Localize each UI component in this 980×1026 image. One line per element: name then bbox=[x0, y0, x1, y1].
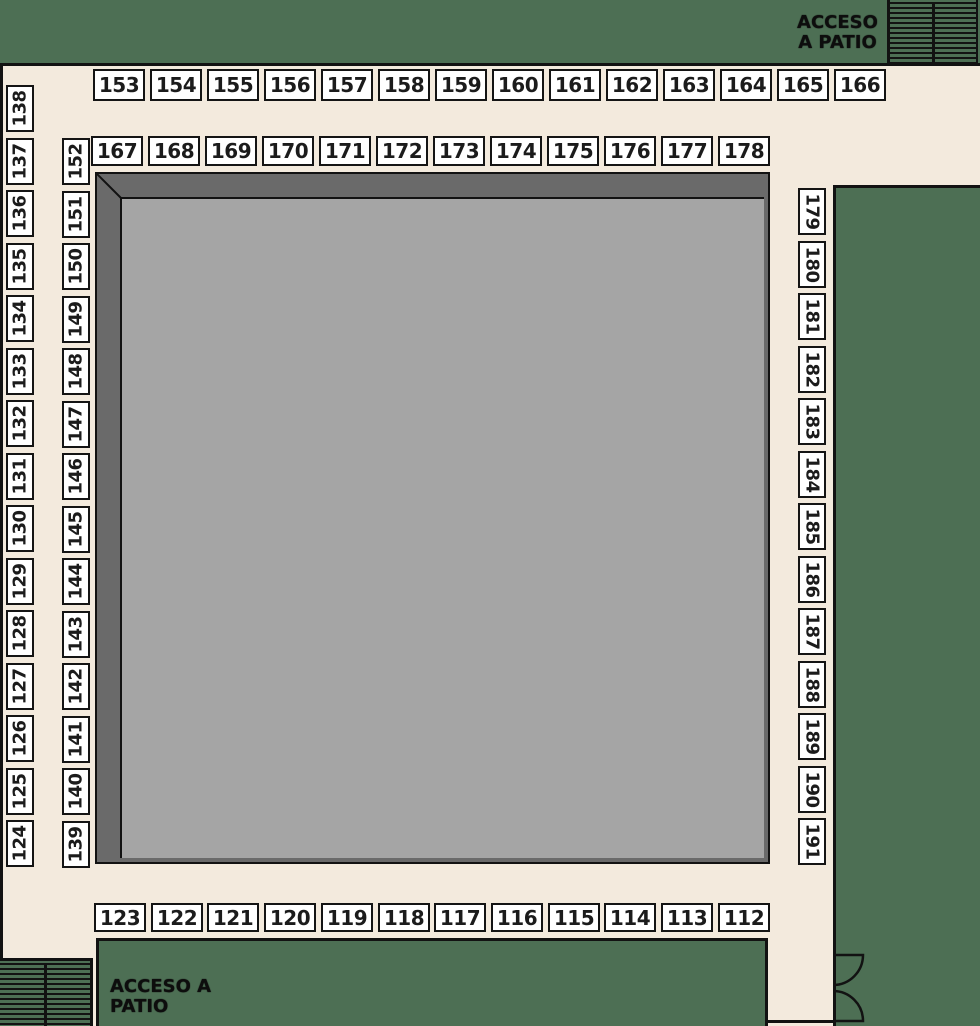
booth-number: 154 bbox=[156, 73, 196, 97]
booth-131[interactable]: 131 bbox=[6, 453, 34, 500]
booth-144[interactable]: 144 bbox=[62, 558, 90, 605]
booth-127[interactable]: 127 bbox=[6, 663, 34, 710]
booth-number: 165 bbox=[783, 73, 823, 97]
booth-number: 190 bbox=[802, 771, 823, 807]
booth-121[interactable]: 121 bbox=[207, 903, 259, 932]
booth-number: 123 bbox=[100, 906, 140, 930]
booth-182[interactable]: 182 bbox=[798, 346, 826, 393]
top-exterior-strip: ACCESO A PATIO bbox=[0, 0, 980, 66]
access-label-line2: PATIO bbox=[110, 997, 211, 1017]
booth-number: 182 bbox=[802, 351, 823, 387]
booth-number: 118 bbox=[384, 906, 424, 930]
booth-number: 119 bbox=[327, 906, 367, 930]
booth-number: 173 bbox=[439, 139, 479, 163]
booth-157[interactable]: 157 bbox=[321, 69, 373, 101]
booth-180[interactable]: 180 bbox=[798, 241, 826, 288]
booth-191[interactable]: 191 bbox=[798, 818, 826, 865]
booth-number: 178 bbox=[724, 139, 764, 163]
booth-number: 135 bbox=[10, 248, 31, 284]
booth-145[interactable]: 145 bbox=[62, 506, 90, 553]
booth-number: 138 bbox=[10, 90, 31, 126]
booth-number: 126 bbox=[10, 720, 31, 756]
booth-164[interactable]: 164 bbox=[720, 69, 772, 101]
booth-number: 139 bbox=[66, 826, 87, 862]
booth-number: 147 bbox=[66, 406, 87, 442]
booth-number: 151 bbox=[66, 196, 87, 232]
booth-number: 186 bbox=[802, 561, 823, 597]
booth-number: 116 bbox=[497, 906, 537, 930]
booth-152[interactable]: 152 bbox=[62, 138, 90, 185]
booth-number: 153 bbox=[99, 73, 139, 97]
booth-170[interactable]: 170 bbox=[262, 136, 314, 166]
booth-number: 145 bbox=[66, 511, 87, 547]
booth-160[interactable]: 160 bbox=[492, 69, 544, 101]
booth-137[interactable]: 137 bbox=[6, 138, 34, 185]
booth-126[interactable]: 126 bbox=[6, 715, 34, 762]
booth-150[interactable]: 150 bbox=[62, 243, 90, 290]
booth-number: 148 bbox=[66, 353, 87, 389]
booth-number: 141 bbox=[66, 721, 87, 757]
booth-154[interactable]: 154 bbox=[150, 69, 202, 101]
booth-140[interactable]: 140 bbox=[62, 768, 90, 815]
access-label-line1: ACCESO A bbox=[110, 977, 211, 997]
booth-123[interactable]: 123 bbox=[94, 903, 146, 932]
booth-number: 183 bbox=[802, 403, 823, 439]
booth-number: 158 bbox=[384, 73, 424, 97]
booth-number: 163 bbox=[669, 73, 709, 97]
booth-number: 179 bbox=[802, 193, 823, 229]
booth-128[interactable]: 128 bbox=[6, 610, 34, 657]
booth-120[interactable]: 120 bbox=[264, 903, 316, 932]
booth-number: 129 bbox=[10, 563, 31, 599]
booth-185[interactable]: 185 bbox=[798, 503, 826, 550]
booth-number: 184 bbox=[802, 456, 823, 492]
booth-number: 127 bbox=[10, 668, 31, 704]
booth-153[interactable]: 153 bbox=[93, 69, 145, 101]
booth-number: 146 bbox=[66, 458, 87, 494]
booth-number: 124 bbox=[10, 825, 31, 861]
booth-122[interactable]: 122 bbox=[151, 903, 203, 932]
booth-115[interactable]: 115 bbox=[548, 903, 600, 932]
booth-number: 121 bbox=[213, 906, 253, 930]
booth-183[interactable]: 183 bbox=[798, 398, 826, 445]
booth-number: 162 bbox=[612, 73, 652, 97]
booth-181[interactable]: 181 bbox=[798, 293, 826, 340]
booth-163[interactable]: 163 bbox=[663, 69, 715, 101]
booth-186[interactable]: 186 bbox=[798, 556, 826, 603]
booth-147[interactable]: 147 bbox=[62, 401, 90, 448]
booth-161[interactable]: 161 bbox=[549, 69, 601, 101]
booth-184[interactable]: 184 bbox=[798, 451, 826, 498]
booth-133[interactable]: 133 bbox=[6, 348, 34, 395]
booth-113[interactable]: 113 bbox=[661, 903, 713, 932]
booth-166[interactable]: 166 bbox=[834, 69, 886, 101]
booth-118[interactable]: 118 bbox=[378, 903, 430, 932]
booth-173[interactable]: 173 bbox=[433, 136, 485, 166]
access-label-bottom-left: ACCESO A PATIO bbox=[110, 977, 211, 1017]
booth-138[interactable]: 138 bbox=[6, 85, 34, 132]
booth-number: 175 bbox=[553, 139, 593, 163]
booth-130[interactable]: 130 bbox=[6, 505, 34, 552]
booth-189[interactable]: 189 bbox=[798, 713, 826, 760]
booth-129[interactable]: 129 bbox=[6, 558, 34, 605]
booth-number: 171 bbox=[325, 139, 365, 163]
booth-number: 140 bbox=[66, 773, 87, 809]
booth-number: 174 bbox=[496, 139, 536, 163]
booth-112[interactable]: 112 bbox=[718, 903, 770, 932]
booth-number: 122 bbox=[157, 906, 197, 930]
booth-number: 160 bbox=[498, 73, 538, 97]
booth-number: 176 bbox=[610, 139, 650, 163]
booth-number: 191 bbox=[802, 823, 823, 859]
booth-172[interactable]: 172 bbox=[376, 136, 428, 166]
access-label-line2: A PATIO bbox=[770, 33, 905, 53]
booth-146[interactable]: 146 bbox=[62, 453, 90, 500]
bottom-exterior-area: ACCESO A PATIO bbox=[96, 938, 768, 1026]
booth-number: 159 bbox=[441, 73, 481, 97]
booth-135[interactable]: 135 bbox=[6, 243, 34, 290]
booth-139[interactable]: 139 bbox=[62, 821, 90, 868]
booth-167[interactable]: 167 bbox=[91, 136, 143, 166]
booth-143[interactable]: 143 bbox=[62, 611, 90, 658]
booth-number: 149 bbox=[66, 301, 87, 337]
booth-151[interactable]: 151 bbox=[62, 191, 90, 238]
booth-number: 172 bbox=[382, 139, 422, 163]
stairs-bottom-left-icon bbox=[0, 958, 93, 1026]
booth-number: 180 bbox=[802, 246, 823, 282]
booth-number: 177 bbox=[667, 139, 707, 163]
stairs-cell bbox=[44, 963, 91, 1026]
access-label-line1: ACCESO bbox=[770, 13, 905, 33]
booth-number: 185 bbox=[802, 508, 823, 544]
booth-155[interactable]: 155 bbox=[207, 69, 259, 101]
booth-125[interactable]: 125 bbox=[6, 768, 34, 815]
patio-floor-plan: ACCESO A PATIO ACCESO A PATIO 1531541551… bbox=[0, 0, 980, 1026]
booth-159[interactable]: 159 bbox=[435, 69, 487, 101]
booth-142[interactable]: 142 bbox=[62, 663, 90, 710]
booth-number: 128 bbox=[10, 615, 31, 651]
stairs-cell bbox=[932, 2, 977, 62]
wall-line-bottom-right bbox=[768, 1020, 833, 1023]
booth-number: 120 bbox=[270, 906, 310, 930]
patio-floor-inner bbox=[120, 197, 764, 858]
booth-number: 188 bbox=[802, 666, 823, 702]
booth-number: 167 bbox=[97, 139, 137, 163]
booth-162[interactable]: 162 bbox=[606, 69, 658, 101]
patio-corner-miter bbox=[97, 174, 127, 204]
booth-number: 137 bbox=[10, 143, 31, 179]
booth-number: 142 bbox=[66, 668, 87, 704]
booth-174[interactable]: 174 bbox=[490, 136, 542, 166]
booth-number: 130 bbox=[10, 510, 31, 546]
booth-number: 132 bbox=[10, 405, 31, 441]
booth-number: 152 bbox=[66, 143, 87, 179]
booth-number: 115 bbox=[554, 906, 594, 930]
booth-number: 131 bbox=[10, 458, 31, 494]
booth-187[interactable]: 187 bbox=[798, 608, 826, 655]
wall-line-left bbox=[0, 63, 3, 958]
booth-177[interactable]: 177 bbox=[661, 136, 713, 166]
booth-134[interactable]: 134 bbox=[6, 295, 34, 342]
booth-number: 133 bbox=[10, 353, 31, 389]
booth-number: 143 bbox=[66, 616, 87, 652]
booth-176[interactable]: 176 bbox=[604, 136, 656, 166]
booth-149[interactable]: 149 bbox=[62, 296, 90, 343]
booth-179[interactable]: 179 bbox=[798, 188, 826, 235]
booth-number: 144 bbox=[66, 563, 87, 599]
booth-number: 155 bbox=[213, 73, 253, 97]
booth-169[interactable]: 169 bbox=[205, 136, 257, 166]
booth-number: 166 bbox=[840, 73, 880, 97]
booth-171[interactable]: 171 bbox=[319, 136, 371, 166]
booth-number: 181 bbox=[802, 298, 823, 334]
booth-141[interactable]: 141 bbox=[62, 716, 90, 763]
booth-158[interactable]: 158 bbox=[378, 69, 430, 101]
booth-number: 168 bbox=[154, 139, 194, 163]
booth-number: 134 bbox=[10, 300, 31, 336]
booth-188[interactable]: 188 bbox=[798, 661, 826, 708]
booth-number: 136 bbox=[10, 195, 31, 231]
booth-number: 112 bbox=[724, 906, 764, 930]
booth-148[interactable]: 148 bbox=[62, 348, 90, 395]
stairs-cell bbox=[0, 963, 44, 1026]
booth-number: 156 bbox=[270, 73, 310, 97]
booth-number: 113 bbox=[667, 906, 707, 930]
booth-number: 161 bbox=[555, 73, 595, 97]
booth-number: 170 bbox=[268, 139, 308, 163]
booth-number: 157 bbox=[327, 73, 367, 97]
booth-116[interactable]: 116 bbox=[491, 903, 543, 932]
booth-number: 169 bbox=[211, 139, 251, 163]
booth-136[interactable]: 136 bbox=[6, 190, 34, 237]
patio-floor bbox=[95, 172, 770, 864]
booth-number: 189 bbox=[802, 718, 823, 754]
booth-number: 164 bbox=[726, 73, 766, 97]
booth-number: 117 bbox=[440, 906, 480, 930]
booth-156[interactable]: 156 bbox=[264, 69, 316, 101]
booth-number: 150 bbox=[66, 248, 87, 284]
access-label-top-right: ACCESO A PATIO bbox=[770, 13, 905, 53]
right-exterior-area bbox=[833, 185, 980, 1026]
booth-178[interactable]: 178 bbox=[718, 136, 770, 166]
double-door-icon bbox=[831, 952, 869, 1024]
booth-165[interactable]: 165 bbox=[777, 69, 829, 101]
booth-132[interactable]: 132 bbox=[6, 400, 34, 447]
booth-117[interactable]: 117 bbox=[434, 903, 486, 932]
booth-190[interactable]: 190 bbox=[798, 766, 826, 813]
booth-124[interactable]: 124 bbox=[6, 820, 34, 867]
booth-number: 187 bbox=[802, 613, 823, 649]
booth-number: 125 bbox=[10, 773, 31, 809]
booth-119[interactable]: 119 bbox=[321, 903, 373, 932]
booth-175[interactable]: 175 bbox=[547, 136, 599, 166]
booth-number: 114 bbox=[610, 906, 650, 930]
booth-114[interactable]: 114 bbox=[604, 903, 656, 932]
booth-168[interactable]: 168 bbox=[148, 136, 200, 166]
